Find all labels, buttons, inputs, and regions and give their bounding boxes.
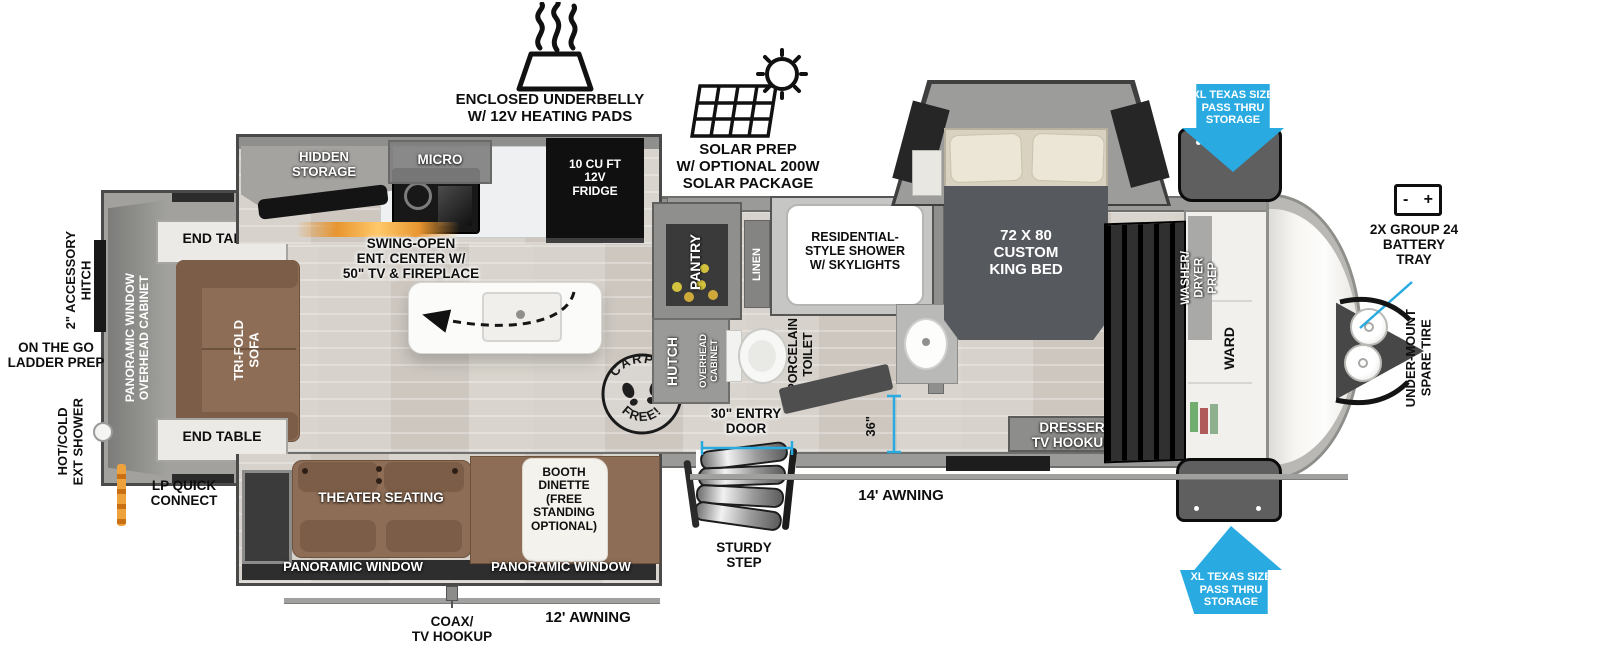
flap-rivet (1256, 506, 1261, 511)
tire-hub (1358, 358, 1368, 368)
bed-pillow (949, 133, 1023, 183)
rear-top-window-slot (172, 193, 234, 202)
cupholder (302, 468, 308, 474)
ladder-prep-label: ON THE GO LADDER PREP (0, 340, 112, 370)
storage-item (1200, 408, 1208, 434)
storage-item (1190, 402, 1198, 432)
battery-plus: + (1424, 191, 1433, 209)
toilet-seat (748, 340, 776, 372)
sturdy-step-label: STURDY STEP (696, 540, 792, 570)
hutch-overhead-cabinet-label: OVERHEAD CABINET (698, 334, 720, 388)
pass-thru-bottom-label: XL TEXAS SIZE PASS THRU STORAGE (1180, 571, 1282, 609)
booth-dinette-label: BOOTH DINETTE (FREE STANDING OPTIONAL) (492, 466, 636, 533)
coax-pin (451, 601, 453, 608)
bed-nightstand (912, 150, 942, 196)
rear-window-cabinet-label: PANORAMIC WINDOW OVERHEAD CABINET (123, 273, 151, 402)
micro-label: MICRO (388, 152, 492, 167)
cupholder (376, 478, 382, 484)
ext-shower-knob-icon (93, 422, 113, 442)
tire-hub (1364, 322, 1374, 332)
fireplace-glow (296, 222, 460, 237)
bottom-slide-end-window (242, 470, 292, 564)
linen-label: LINEN (751, 248, 764, 281)
battery-icon: - + (1394, 184, 1442, 216)
pass-thru-top-label: XL TEXAS SIZE PASS THRU STORAGE (1182, 89, 1284, 127)
king-bed-label: 72 X 80 CUSTOM KING BED (944, 228, 1108, 278)
theater-seat-back (384, 462, 464, 492)
hutch-label: HUTCH (664, 337, 681, 386)
island-faucet-icon (516, 310, 525, 319)
pass-thru-arrow-bottom: XL TEXAS SIZE PASS THRU STORAGE (1180, 526, 1282, 614)
stove-highlight (438, 186, 472, 226)
bed-pillow (1031, 133, 1105, 183)
ext-shower-label: HOT/COLD EXT SHOWER (55, 398, 86, 485)
hidden-storage-label: HIDDEN STORAGE (254, 150, 394, 179)
lp-quick-connect-pipe-icon (117, 464, 126, 526)
theater-seating-label: THEATER SEATING (292, 490, 470, 505)
stove-burner (404, 182, 432, 210)
theater-seat-back (298, 462, 378, 492)
coax-label: COAX/ TV HOOKUP (396, 614, 508, 644)
dim-36-label: 36" (863, 416, 878, 437)
bath-faucet-icon (922, 338, 930, 346)
shower-label: RESIDENTIAL- STYLE SHOWER W/ SKYLIGHTS (786, 230, 924, 272)
pantry-label: PANTRY (687, 234, 704, 290)
pass-thru-door-bottom (1176, 458, 1282, 522)
solar-label: SOLAR PREP W/ OPTIONAL 200W SOLAR PACKAG… (638, 142, 858, 192)
storage-item (1210, 404, 1218, 434)
battery-minus: - (1403, 191, 1408, 209)
panoramic-window-right-label: PANORAMIC WINDOW (466, 560, 656, 575)
ward-label: WARD (1221, 327, 1238, 370)
theater-ottoman (300, 520, 376, 552)
cupholder (376, 466, 382, 472)
spare-tire-label: UNDER-MOUNT SPARE TIRE (1403, 309, 1434, 407)
underbelly-label: ENCLOSED UNDERBELLY W/ 12V HEATING PADS (440, 92, 660, 126)
end-table-bottom-label: END TABLE (156, 429, 288, 445)
accessory-hitch-label: 2" ACCESSORY HITCH (63, 231, 94, 329)
awning-12-label: 12' AWNING (528, 610, 648, 627)
awning-12-rail (284, 598, 660, 604)
tri-fold-sofa-label: TRI-FOLD SOFA (231, 320, 262, 381)
awning-14-rail (690, 474, 1348, 480)
wardrobe (1104, 221, 1186, 464)
panoramic-window-left-label: PANORAMIC WINDOW (250, 560, 456, 575)
lp-quick-connect-label: LP QUICK CONNECT (128, 478, 240, 508)
awning-14-label: 14' AWNING (836, 488, 966, 505)
ent-center-label: SWING-OPEN ENT. CENTER W/ 50" TV & FIREP… (250, 236, 572, 281)
flap-rivet (1194, 506, 1199, 511)
cupholder (452, 468, 458, 474)
rv-floorplan-diagram: PANORAMIC WINDOW OVERHEAD CABINET END TA… (0, 0, 1600, 660)
heating-pads-icon (502, 2, 608, 92)
battery-tray-label: 2X GROUP 24 BATTERY TRAY (1346, 222, 1482, 267)
bedroom-tv-slab (946, 456, 1050, 471)
coax-connector-icon (446, 586, 458, 601)
entry-door-label: 30" ENTRY DOOR (688, 406, 804, 436)
solar-prep-icon (690, 48, 808, 142)
fridge-label: 10 CU FT 12V FRIDGE (546, 158, 644, 198)
theater-ottoman (386, 520, 462, 552)
